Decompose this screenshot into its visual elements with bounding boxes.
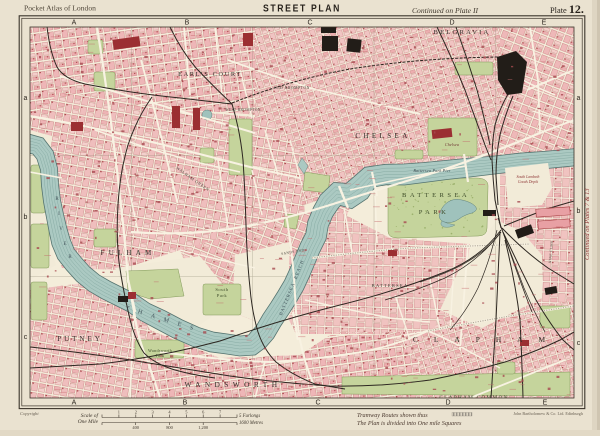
svg-text:Goods Depôt: Goods Depôt xyxy=(518,180,539,184)
svg-text:D: D xyxy=(445,400,450,407)
svg-text:FULHAM: FULHAM xyxy=(101,249,156,257)
svg-text:EARL’S COURT: EARL’S COURT xyxy=(178,71,242,78)
svg-text:WANDSWORTH: WANDSWORTH xyxy=(185,380,282,389)
svg-text:C: C xyxy=(315,400,320,407)
svg-text:c: c xyxy=(577,340,581,347)
svg-text:CLAPHAM: CLAPHAM xyxy=(413,335,561,344)
svg-text:The Plan is divided into One m: The Plan is divided into One mile Square… xyxy=(357,420,462,427)
svg-text:V: V xyxy=(59,227,63,232)
svg-text:Copyright: Copyright xyxy=(20,411,39,416)
svg-text:OLD BROMPTON: OLD BROMPTON xyxy=(274,86,310,90)
svg-text:a: a xyxy=(577,95,581,102)
svg-text:2: 2 xyxy=(135,410,137,415)
svg-text:Pocket Atlas of London: Pocket Atlas of London xyxy=(24,4,96,13)
svg-text:CHELSEA: CHELSEA xyxy=(355,132,410,140)
svg-text:One Mile: One Mile xyxy=(78,419,99,425)
svg-text:c: c xyxy=(24,334,28,341)
svg-text:WEST BROMPTON: WEST BROMPTON xyxy=(225,108,261,112)
svg-text:800: 800 xyxy=(166,425,173,430)
svg-text:C: C xyxy=(307,20,312,27)
svg-text:400: 400 xyxy=(132,425,139,430)
svg-text:1600 Metres: 1600 Metres xyxy=(239,421,263,426)
svg-text:PUTNEY: PUTNEY xyxy=(57,335,103,343)
svg-text:BATTERSEA: BATTERSEA xyxy=(372,283,409,288)
svg-text:5 Furlongs: 5 Furlongs xyxy=(239,414,260,419)
svg-text:Tramway Routes shown thus: Tramway Routes shown thus xyxy=(357,412,428,419)
svg-text:PARK: PARK xyxy=(419,209,450,216)
svg-text:E: E xyxy=(542,20,547,27)
svg-text:Scale of: Scale of xyxy=(81,412,100,419)
svg-text:BELGRAVIA: BELGRAVIA xyxy=(433,29,490,36)
svg-text:BATTERSEA: BATTERSEA xyxy=(402,192,470,199)
svg-text:Continued on Plates 7 & 13: Continued on Plates 7 & 13 xyxy=(584,188,591,260)
svg-text:Continued on Plate II: Continued on Plate II xyxy=(412,6,478,15)
svg-text:South: South xyxy=(215,287,228,292)
svg-text:1: 1 xyxy=(118,410,120,415)
svg-text:a: a xyxy=(24,95,28,102)
svg-text:b: b xyxy=(577,208,581,215)
svg-text:E: E xyxy=(543,400,548,407)
svg-text:Park: Park xyxy=(217,293,228,298)
svg-text:STREET PLAN: STREET PLAN xyxy=(263,3,341,15)
svg-text:D: D xyxy=(449,20,454,27)
svg-text:John Bartholomew & Co. Ltd. Ed: John Bartholomew & Co. Ltd. Edinburgh xyxy=(513,411,584,416)
svg-text:South Lambeth: South Lambeth xyxy=(517,175,540,179)
svg-text:E: E xyxy=(63,242,66,247)
svg-text:A: A xyxy=(72,20,77,27)
svg-text:b: b xyxy=(24,214,28,221)
svg-text:Chelsea: Chelsea xyxy=(445,142,459,147)
svg-text:Park: Park xyxy=(156,353,165,358)
svg-text:A: A xyxy=(72,400,77,407)
svg-text:B: B xyxy=(185,20,190,27)
svg-text:Battersea Park Pier: Battersea Park Pier xyxy=(413,168,450,173)
svg-text:B: B xyxy=(183,400,188,407)
